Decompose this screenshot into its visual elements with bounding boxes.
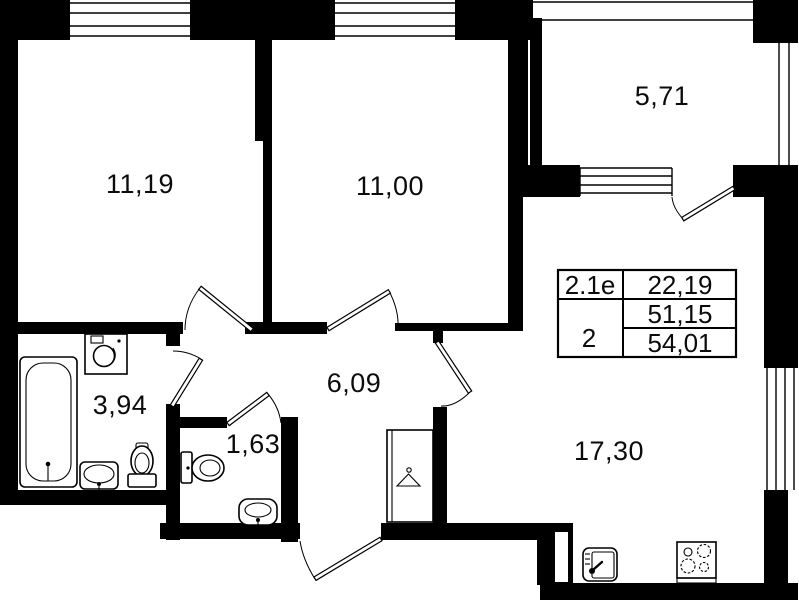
wall-segment (508, 197, 523, 331)
stove-icon (677, 542, 716, 583)
room-label-hallway: 6,09 (327, 368, 382, 398)
wall-segment (540, 583, 798, 600)
plan-code: 2.1e (565, 270, 616, 300)
wall-segment (245, 322, 327, 334)
room-label-bathroom: 3,94 (93, 390, 148, 420)
door-kitchen (435, 341, 471, 406)
area-value-mid: 51,15 (647, 299, 712, 329)
sink-icon (239, 499, 277, 526)
window-balcony-right (779, 43, 789, 165)
wall-segment (433, 407, 447, 525)
wall-segment (0, 322, 183, 334)
wall-segment (455, 0, 533, 40)
wall-segment (180, 417, 227, 428)
room-label-bedroom-1: 11,19 (106, 169, 174, 199)
wall-segment (764, 197, 798, 368)
wall-segment (0, 0, 18, 505)
door-bedroom-1 (185, 286, 253, 331)
wall-segment (190, 0, 335, 40)
window-balcony-top (533, 2, 753, 20)
wall-segment (381, 523, 541, 540)
living-area-value: 22,19 (647, 270, 712, 300)
door-wc (227, 392, 281, 425)
window-bedroom-2 (335, 3, 455, 36)
sink-icon (80, 462, 118, 490)
room-label-balcony: 5,71 (635, 81, 690, 111)
wall-segment (530, 18, 542, 165)
kitchen-sink-icon (583, 548, 617, 581)
door-balcony (672, 186, 735, 221)
entrance-door (300, 537, 382, 580)
washing-machine-icon (85, 334, 127, 374)
window-balcony-kitchen (580, 168, 672, 196)
wall-segment (508, 38, 528, 197)
entrance-door-slot (555, 532, 568, 582)
wall-segment (255, 37, 272, 141)
wall-segment (764, 490, 788, 583)
wardrobe-hanger-icon (387, 430, 433, 522)
toilet-icon (128, 443, 156, 487)
rooms-count: 2 (582, 323, 596, 353)
wall-segment (753, 0, 798, 43)
wall-segment (160, 523, 300, 539)
wall-segment (528, 165, 580, 197)
window-kitchen-right (767, 368, 794, 490)
door-bathroom (170, 351, 202, 407)
area-value-total: 54,01 (647, 328, 712, 358)
bathtub-icon (20, 357, 77, 487)
wall-segment (0, 490, 170, 505)
window-bedroom-1 (70, 3, 190, 36)
room-label-bedroom-2: 11,00 (356, 171, 424, 201)
info-table: 2.1e 22,19 2 51,15 54,01 (558, 270, 736, 358)
wall-segment (395, 323, 523, 331)
wall-segment (263, 141, 272, 323)
toilet-icon (181, 452, 224, 483)
wall-segment (166, 404, 180, 540)
floor-plan: 11,19 11,00 5,71 6,09 3,94 1,63 17,30 2.… (0, 0, 799, 600)
floor-plan-svg: 11,19 11,00 5,71 6,09 3,94 1,63 17,30 2.… (0, 0, 799, 600)
wall-segment (733, 165, 798, 197)
room-label-kitchen-living: 17,30 (574, 436, 644, 466)
wall-segment (166, 322, 180, 346)
room-label-wc: 1,63 (226, 429, 281, 459)
door-bedroom-2 (327, 290, 398, 331)
